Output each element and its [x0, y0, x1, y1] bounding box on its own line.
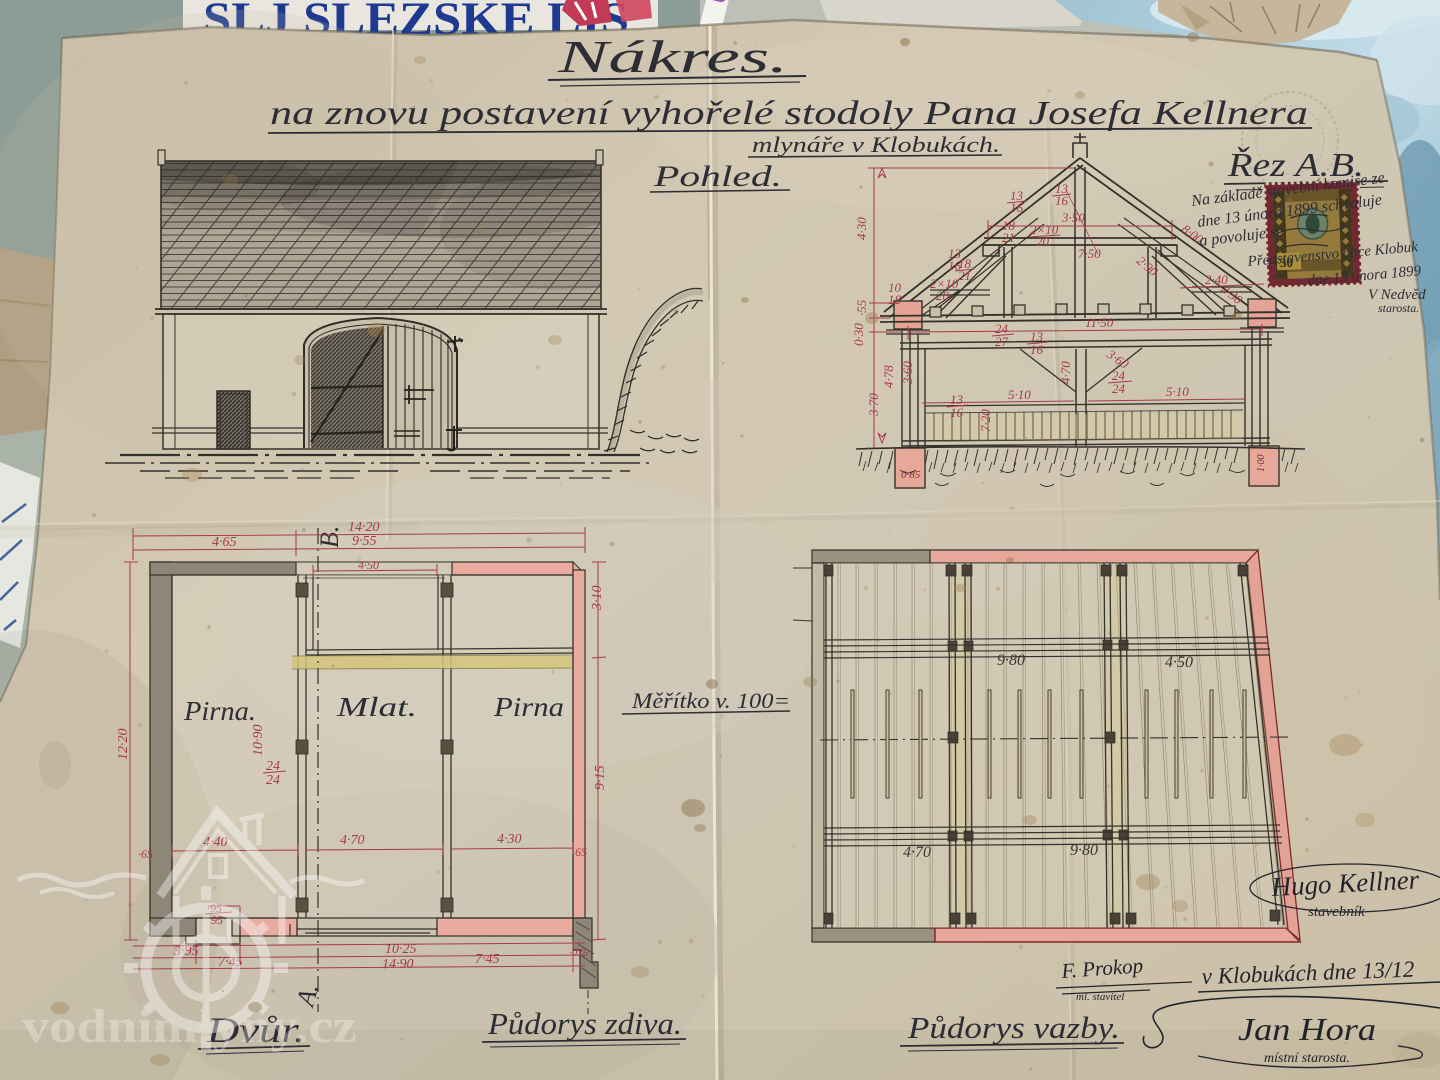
svg-text:Pirna.: Pirna.	[183, 696, 256, 726]
svg-text:7·20: 7·20	[978, 409, 993, 432]
svg-text:4·50: 4·50	[358, 558, 379, 572]
svg-text:9·80: 9·80	[997, 652, 1025, 669]
svg-text:4·50: 4·50	[1165, 654, 1193, 671]
svg-text:místní starosta.: místní starosta.	[1264, 1051, 1350, 1066]
svg-text:4·30: 4·30	[854, 217, 869, 240]
svg-text:9·15: 9·15	[593, 766, 608, 791]
svg-text:1·00: 1·00	[1256, 455, 1267, 473]
svg-text:5·10: 5·10	[1166, 384, 1189, 399]
svg-text:3·70: 3·70	[866, 393, 881, 417]
svg-text:7·50: 7·50	[1078, 246, 1101, 261]
svg-text:Jan Hora: Jan Hora	[1238, 1011, 1376, 1047]
svg-text:3·50: 3·50	[1061, 210, 1085, 225]
svg-text:na znovu postavení vyhořelé st: na znovu postavení vyhořelé stodoly Pana…	[270, 95, 1308, 132]
svg-text:starosta.: starosta.	[1378, 301, 1419, 315]
svg-text:·075: ·075	[569, 947, 589, 959]
svg-text:·65: ·65	[138, 847, 153, 861]
svg-text:4·70: 4·70	[903, 844, 931, 861]
svg-text:24: 24	[266, 773, 280, 788]
svg-text:16: 16	[948, 258, 962, 273]
svg-text:16: 16	[950, 405, 964, 420]
svg-text:11·50: 11·50	[1085, 315, 1114, 330]
svg-text:3·10: 3·10	[590, 586, 605, 612]
svg-text:Půdorys vazby.: Půdorys vazby.	[907, 1010, 1120, 1045]
svg-text:3·60: 3·60	[900, 361, 915, 385]
svg-text:5·10: 5·10	[1008, 387, 1031, 402]
svg-text:Půdorys zdiva.: Půdorys zdiva.	[487, 1006, 682, 1041]
svg-text:Pohled.: Pohled.	[653, 160, 782, 193]
svg-text:9·55: 9·55	[352, 534, 377, 549]
svg-text:Měřítko v. 100=: Měřítko v. 100=	[631, 688, 790, 713]
svg-text:14·20: 14·20	[348, 520, 380, 535]
svg-text:0·30: 0·30	[851, 323, 866, 346]
svg-text:4·78: 4·78	[881, 365, 896, 388]
svg-text:12·20: 12·20	[116, 729, 131, 761]
svg-text:10·25: 10·25	[385, 942, 417, 957]
svg-text:16: 16	[1030, 342, 1044, 357]
svg-text:mlynáře v Klobukách.: mlynáře v Klobukách.	[752, 132, 1000, 157]
svg-text:20: 20	[936, 288, 950, 303]
svg-text:65: 65	[575, 845, 587, 859]
svg-text:21: 21	[1002, 230, 1015, 245]
svg-text:Pirna: Pirna	[493, 692, 564, 722]
svg-text:18: 18	[888, 292, 902, 307]
svg-text:27: 27	[995, 334, 1009, 349]
svg-text:24: 24	[1112, 381, 1126, 396]
svg-text:B.: B.	[315, 526, 344, 548]
svg-text:ml. stavitel: ml. stavitel	[1076, 991, 1124, 1003]
svg-text:vodnimlyny.cz: vodnimlyny.cz	[22, 1000, 357, 1053]
svg-text:14·90: 14·90	[382, 957, 414, 972]
svg-text:Mlat.: Mlat.	[336, 692, 417, 722]
svg-text:4·70: 4·70	[340, 833, 365, 848]
svg-text:10·90: 10·90	[251, 725, 266, 757]
svg-text:·55: ·55	[854, 299, 869, 316]
svg-text:7·45: 7·45	[475, 952, 500, 967]
svg-text:4·65: 4·65	[212, 535, 237, 550]
svg-text:Nákres.: Nákres.	[556, 31, 788, 82]
svg-text:4·30: 4·30	[497, 832, 522, 847]
svg-text:0·85: 0·85	[901, 469, 921, 481]
svg-text:9·80: 9·80	[1070, 842, 1098, 859]
svg-text:4·70: 4·70	[1058, 361, 1073, 384]
